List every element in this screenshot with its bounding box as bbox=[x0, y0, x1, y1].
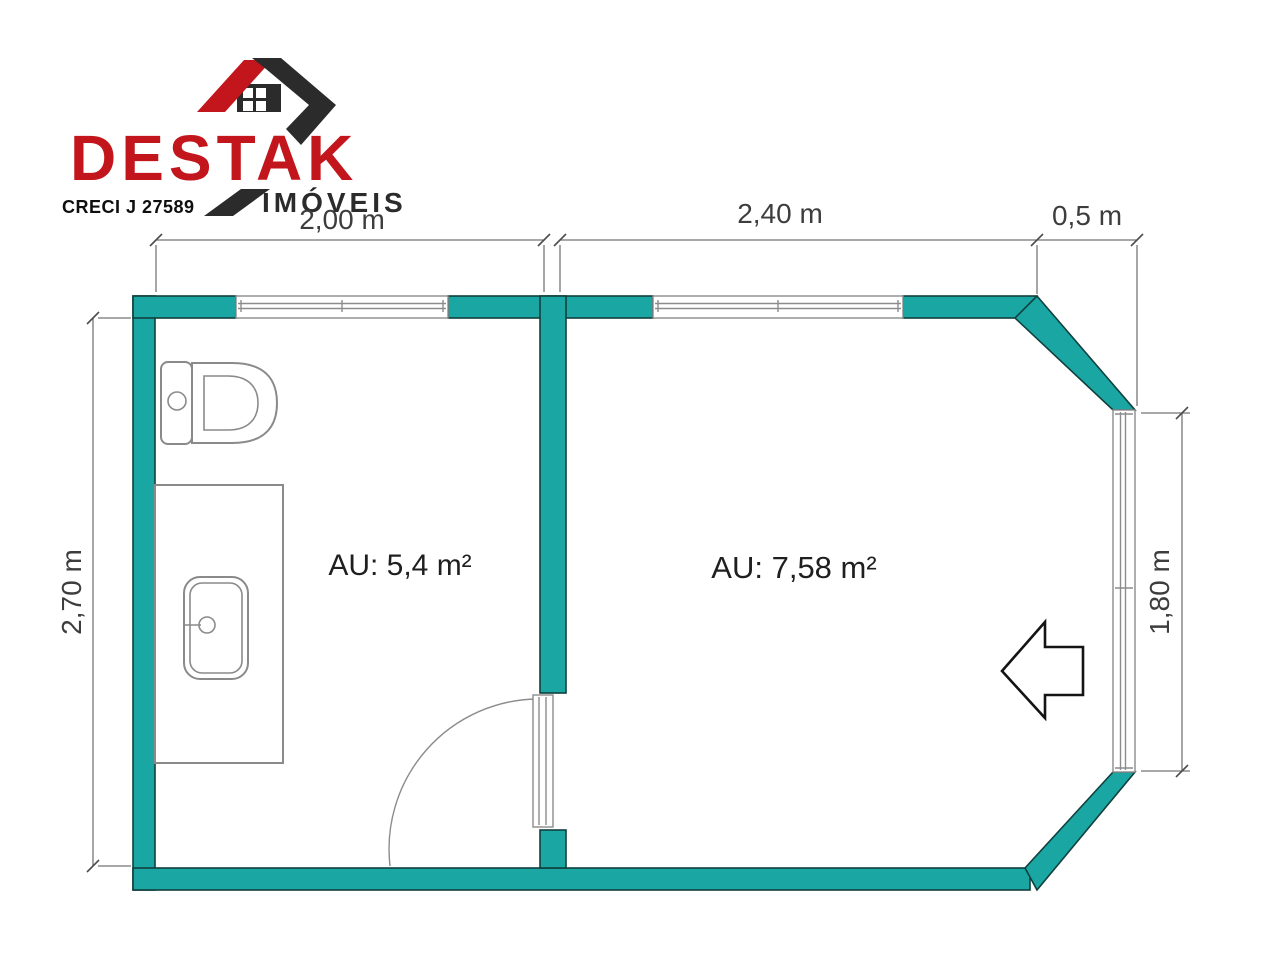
room-label-bedroom: AU: 7,58 m² bbox=[674, 552, 914, 583]
door-arc bbox=[389, 699, 537, 866]
dimension-label-left: 2,70 m bbox=[58, 530, 86, 654]
window-top-right-icon bbox=[653, 296, 903, 318]
toilet-icon bbox=[161, 362, 277, 444]
wall-interior-stub bbox=[540, 830, 566, 868]
wall-top-seg1 bbox=[133, 296, 236, 318]
door-swing bbox=[389, 695, 553, 866]
wall-chamfer-bottom bbox=[1025, 772, 1135, 890]
wall-top-seg3 bbox=[903, 296, 1037, 318]
logo-window-pane bbox=[256, 101, 266, 111]
dimension-label-top-middle: 2,40 m bbox=[710, 200, 850, 228]
room-label-bathroom: AU: 5,4 m² bbox=[290, 551, 510, 581]
dimension-label-top-right: 0,5 m bbox=[1022, 202, 1152, 230]
door-leaf bbox=[533, 695, 553, 827]
wall-interior bbox=[540, 296, 566, 693]
floorplan-page: DESTAK CRECI J 27589 IMÓVEIS 2,00 m 2,40… bbox=[0, 0, 1280, 960]
window-top-left-icon bbox=[236, 296, 448, 318]
logo-window-pane bbox=[243, 101, 253, 111]
exit-arrow-icon bbox=[1002, 622, 1083, 718]
dimension-label-right: 1,80 m bbox=[1146, 530, 1174, 654]
dimension-label-top-left: 2,00 m bbox=[272, 206, 412, 234]
window-right-icon bbox=[1113, 410, 1135, 772]
brand-name: DESTAK bbox=[70, 126, 358, 190]
wall-left bbox=[133, 296, 155, 890]
brand-license: CRECI J 27589 bbox=[62, 198, 195, 216]
sink-icon bbox=[184, 577, 248, 679]
wall-chamfer-top bbox=[1015, 296, 1135, 410]
logo-window-pane bbox=[256, 88, 266, 98]
wall-bottom bbox=[133, 868, 1030, 890]
